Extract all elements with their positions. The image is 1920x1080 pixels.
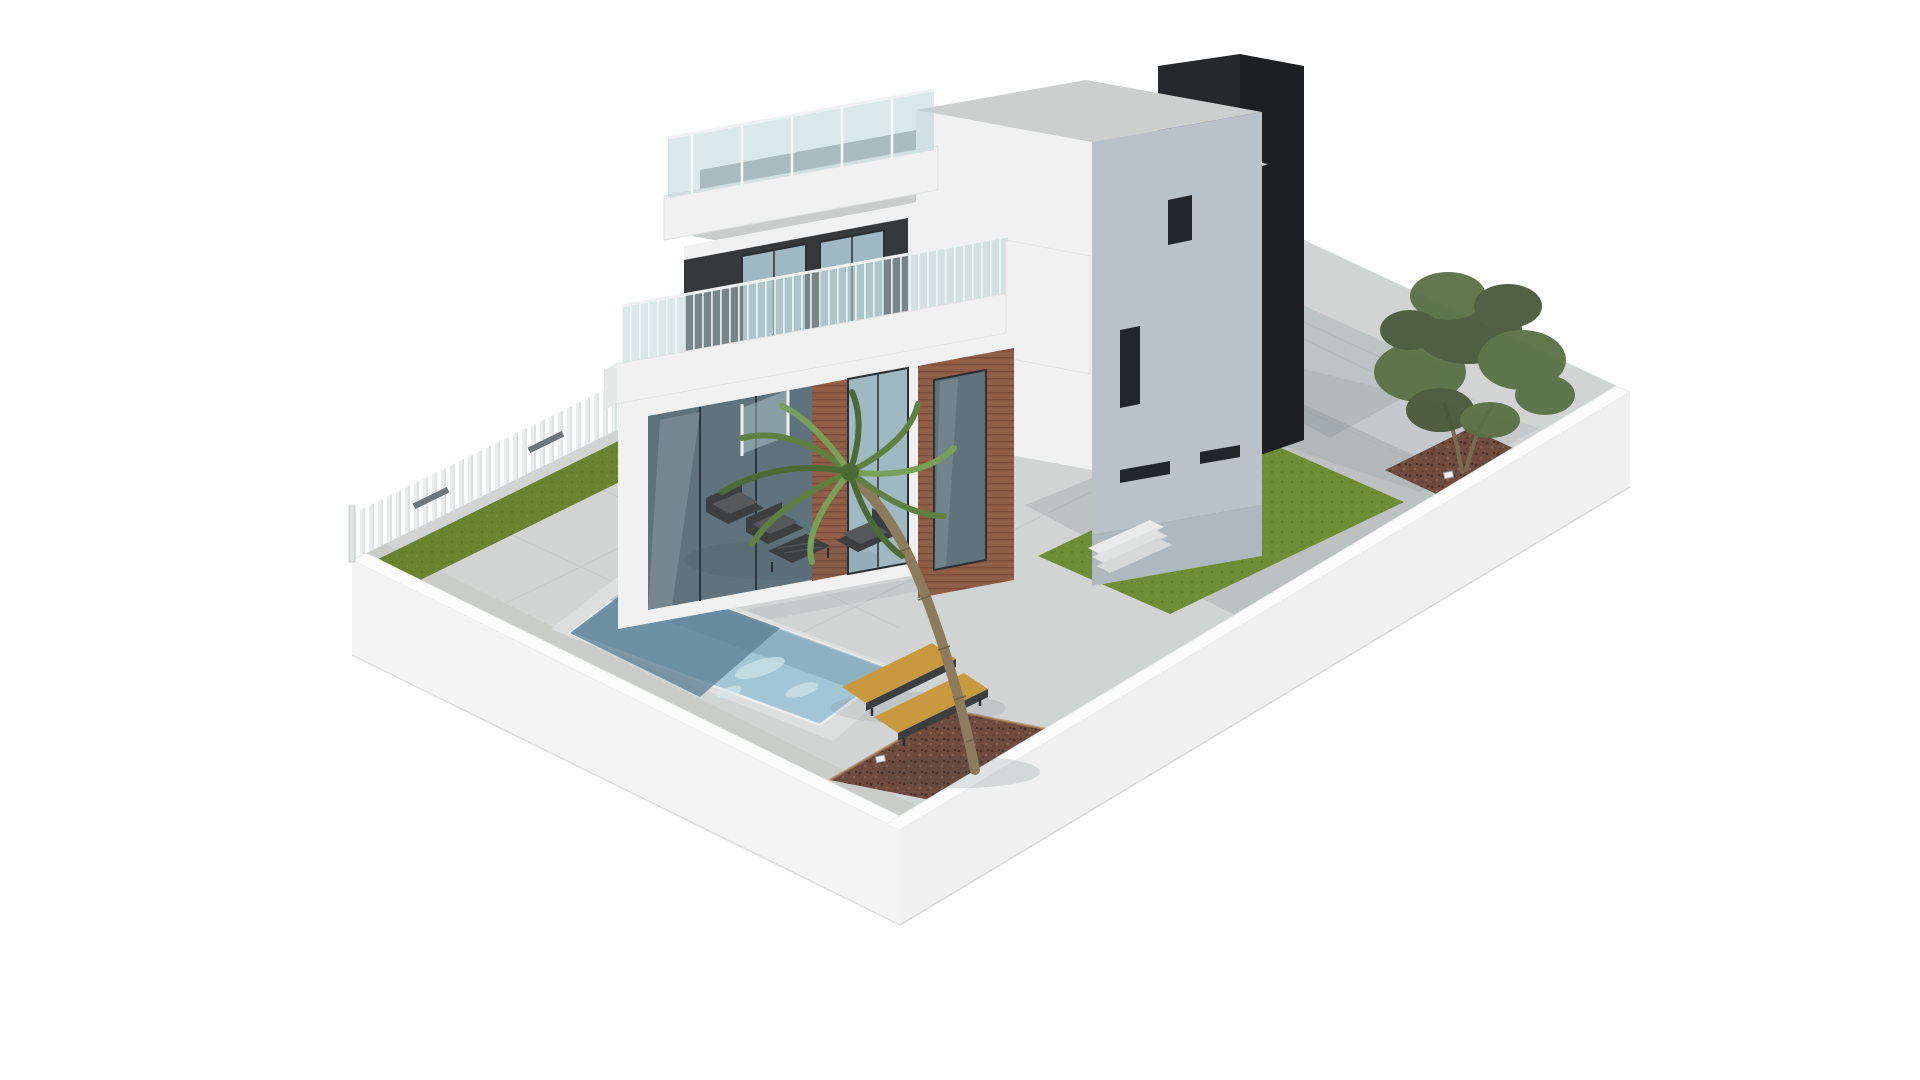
render-stage [0, 0, 1920, 1080]
villa-render-canvas [0, 0, 1920, 1080]
balcony-parapet-return [1006, 240, 1090, 374]
balcony-slab-endcap [604, 364, 616, 410]
tower-window-slit [1120, 326, 1140, 408]
palm-shadow [880, 756, 1040, 788]
stair-tower-side-face [1092, 112, 1262, 535]
spotlight [1443, 471, 1453, 479]
palm-crown-core [841, 463, 859, 481]
spotlight [875, 755, 885, 763]
fence-corner-post [349, 506, 355, 562]
tower-window-slit [1168, 195, 1192, 245]
villa [604, 54, 1304, 629]
